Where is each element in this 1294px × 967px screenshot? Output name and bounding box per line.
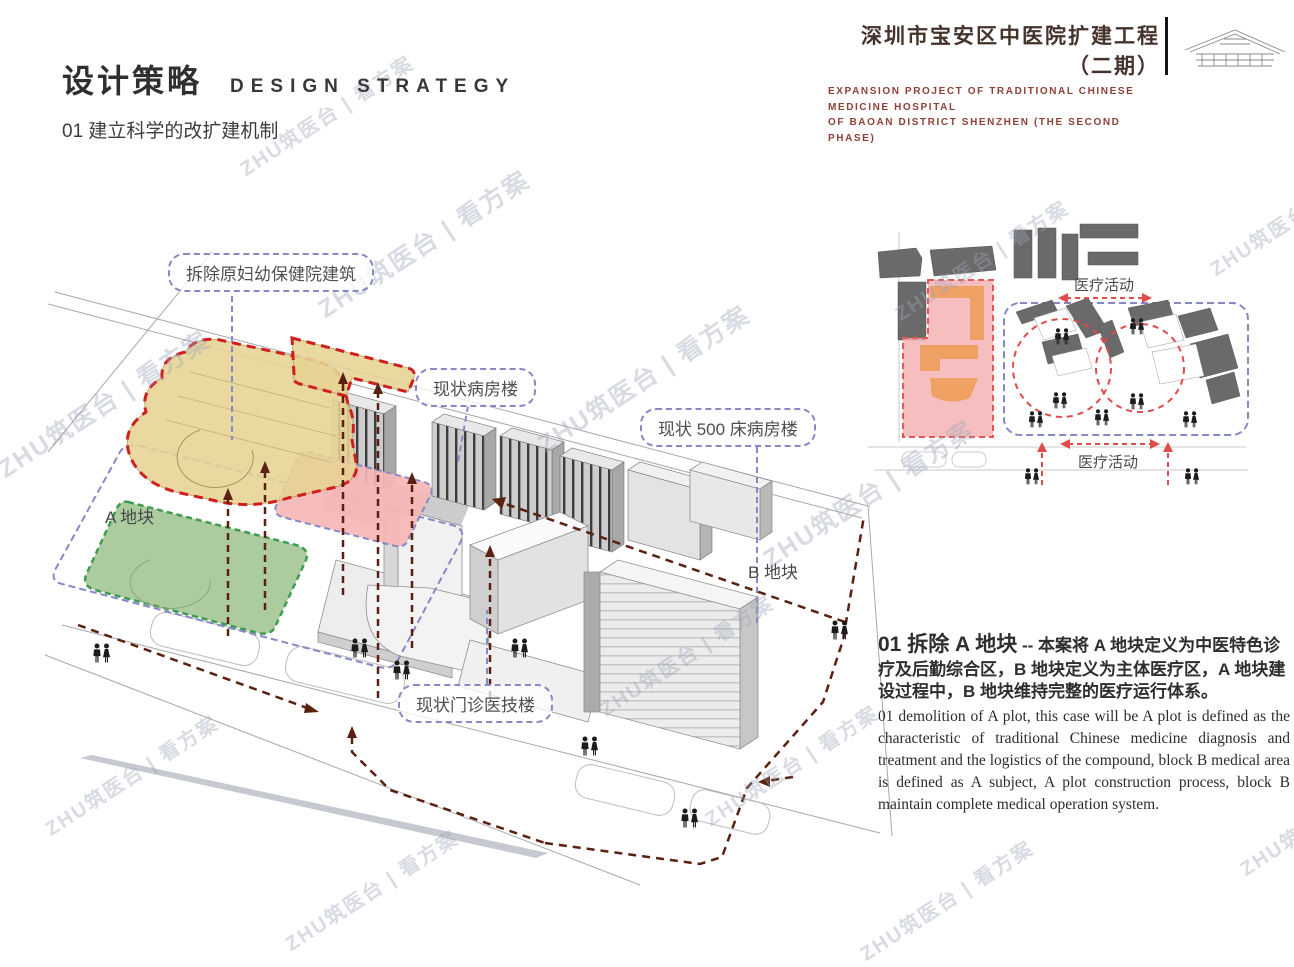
plot-a-label: A 地块 [105, 503, 154, 528]
section-header: 设计策略 DESIGN STRATEGY 01 建立科学的改扩建机制 [62, 56, 515, 143]
project-title: 深圳市宝安区中医院扩建工程（二期） [828, 20, 1160, 80]
project-subtitle-line1: EXPANSION PROJECT OF TRADITIONAL CHINESE… [828, 84, 1160, 115]
description-separator: -- [1022, 636, 1033, 655]
section-subtitle: 01 建立科学的改扩建机制 [62, 116, 515, 143]
mini-activity-label-bottom: 医疗活动 [1078, 451, 1138, 472]
project-subtitle: EXPANSION PROJECT OF TRADITIONAL CHINESE… [828, 84, 1160, 146]
callout-500-bed-ward: 现状 500 床病房楼 [640, 408, 816, 447]
project-header: 深圳市宝安区中医院扩建工程（二期） EXPANSION PROJECT OF T… [828, 20, 1160, 146]
callout-demolish-building: 拆除原妇幼保健院建筑 [168, 253, 374, 292]
section-title-cn: 设计策略 [62, 56, 202, 102]
plot-b-label: B 地块 [748, 558, 798, 583]
header-divider-bar [1165, 17, 1168, 75]
description-block: 01 拆除 A 地块 -- 本案将 A 地块定义为中医特色诊疗及后勤综合区，B … [878, 631, 1290, 816]
mini-activity-label-top: 医疗活动 [1074, 274, 1134, 295]
description-heading: 01 拆除 A 地块 [878, 633, 1017, 656]
roof-structure-sketch-icon [1180, 20, 1290, 76]
description-body-en: 01 demolition of A plot, this case will … [878, 706, 1290, 816]
callout-existing-ward: 现状病房楼 [415, 368, 536, 407]
section-title-en: DESIGN STRATEGY [230, 76, 515, 102]
project-subtitle-line2: OF BAOAN DISTRICT SHENZHEN (THE SECOND P… [828, 115, 1160, 146]
description-cn: 01 拆除 A 地块 -- 本案将 A 地块定义为中医特色诊疗及后勤综合区，B … [878, 631, 1290, 704]
callout-outpatient-building: 现状门诊医技楼 [398, 684, 553, 723]
